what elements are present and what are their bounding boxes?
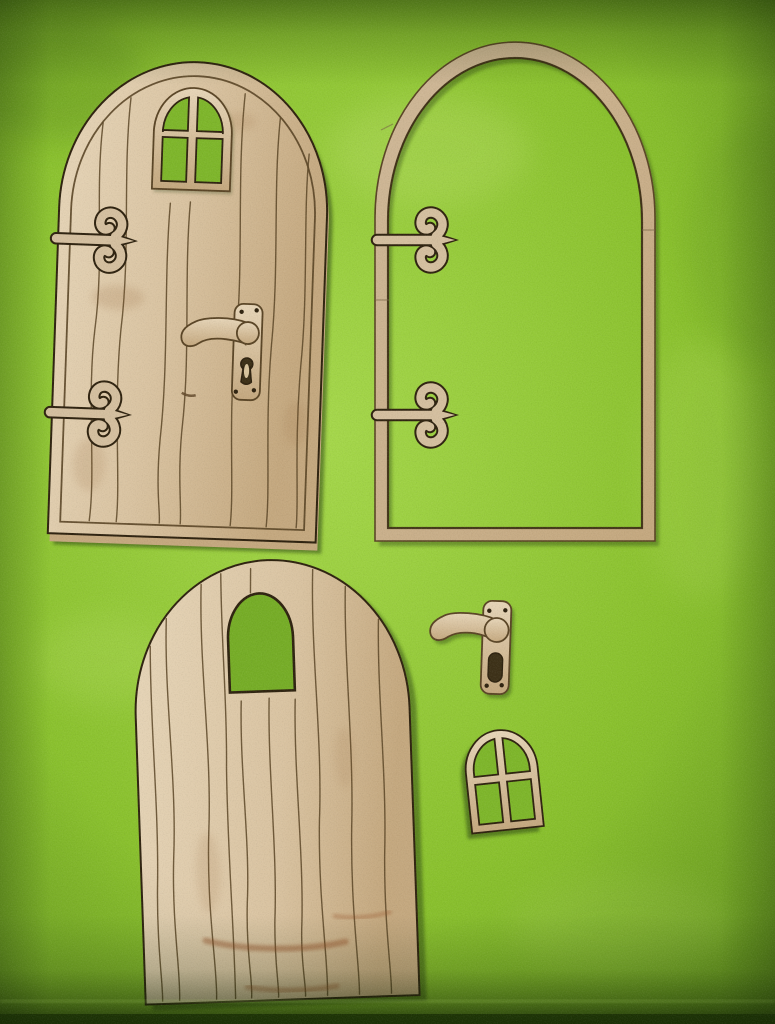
lighting-overlays bbox=[0, 0, 775, 1024]
scene bbox=[0, 0, 775, 1024]
felt-texture-dark bbox=[0, 0, 775, 1024]
